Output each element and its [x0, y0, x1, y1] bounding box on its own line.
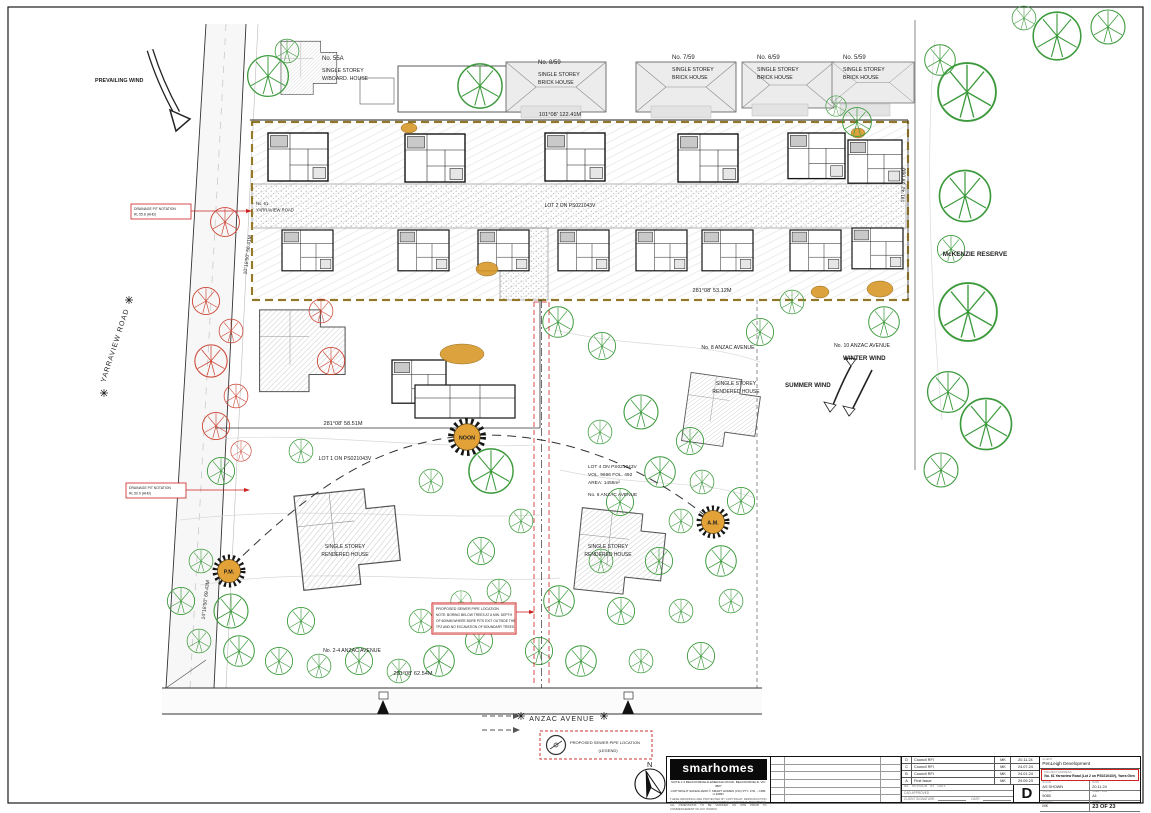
neighbor-roof — [506, 62, 606, 112]
prevailing-wind-arrow — [150, 50, 190, 131]
anzac-avenue-label: ANZAC AVENUE — [529, 716, 595, 723]
tree-icon — [289, 439, 313, 463]
sun-am-label: A.M. — [707, 521, 719, 527]
tree-icon — [669, 599, 693, 623]
reserve-label: McKENZIE RESERVE — [943, 251, 1008, 258]
lot4-label: No. 6 ANZAC AVENUE — [588, 492, 637, 498]
existing-house-label: RENDERED HOUSE — [584, 552, 632, 558]
star-decoration-icon — [517, 712, 525, 720]
neighbor-label: BRICK HOUSE — [843, 75, 879, 81]
revision-table-footer: No. REVISION BY DATE CAD APPROVED CLIENT… — [902, 785, 1013, 802]
project-address-field: PROJECT ADDRESS No. 61 Yarraview Road (L… — [1041, 769, 1139, 781]
star-decoration-icon — [600, 712, 608, 720]
sun-pm-label: P.M. — [224, 570, 235, 576]
tree-icon — [938, 63, 996, 121]
north-arrow: N — [635, 760, 665, 799]
sewer-note-text: OF 600MM WHERE BORE PITS EXIT OUTSIDE TH… — [436, 619, 516, 623]
tree-icon — [746, 318, 773, 345]
winter-wind-label: WINTER WIND — [843, 355, 886, 362]
cad-approved-label: CAD APPROVED — [904, 792, 929, 796]
revision-row: C Council RFI MK 24.07.24 — [902, 764, 1039, 771]
tree-icon — [287, 607, 314, 634]
tree-icon — [690, 470, 714, 494]
drainage-note-text: DRAINAGE PIT NOTATION — [134, 207, 176, 211]
neighbor-label: No. 8/59 — [538, 60, 561, 66]
tree-icon — [687, 642, 714, 669]
tree-icon — [939, 283, 997, 341]
neighbor-label: SINGLE STOREY — [538, 72, 580, 78]
existing-house-outline — [260, 310, 346, 392]
tree-icon — [588, 332, 615, 359]
tree-icon — [224, 636, 255, 667]
tree-icon — [469, 449, 513, 493]
proposed-house-unit — [545, 133, 605, 181]
tree-icon — [307, 654, 331, 678]
proposed-house-unit — [790, 230, 841, 271]
tree-icon — [924, 453, 958, 487]
proposed-house-unit — [788, 133, 845, 179]
existing-house-label: SINGLE STOREY — [588, 544, 629, 550]
sheet-number-field: SHEET 23 OF 23 — [1090, 801, 1140, 812]
prevailing-wind-label: PREVAILING WIND — [95, 78, 144, 84]
tree-icon — [928, 372, 969, 413]
tree-icon — [487, 579, 511, 603]
proposed-house-unit — [636, 230, 687, 271]
neighbor-label: SINGLE STOREY — [843, 67, 885, 73]
neighbor-label: SINGLE STOREY — [672, 67, 714, 73]
tree-icon — [265, 647, 292, 674]
drainage-note-text: RL 55.8 (AHD) — [134, 213, 156, 217]
current-revision-badge: D — [1013, 785, 1039, 802]
existing-house-label: RENDERED HOUSE — [712, 389, 760, 395]
address-label: No. 8 ANZAC AVENUE — [701, 345, 755, 351]
north-label: N — [647, 760, 652, 769]
address-label: No. 10 ANZAC AVENUE — [834, 343, 891, 349]
tree-icon — [419, 469, 443, 493]
tree-icon — [706, 546, 737, 577]
yarraview-road-label: YARRAVIEW ROAD — [100, 308, 130, 384]
tree-icon — [543, 307, 574, 338]
site-plan-drawing: NOON A.M. P.M. DRAINAGE PIT NOTATION RL … — [0, 0, 1151, 813]
tree-icon — [607, 597, 634, 624]
neighbor-label: No. 6/59 — [757, 55, 780, 61]
tree-icon — [509, 509, 533, 533]
sewer-note-text: TPZ AND NO EXCAVATION OF BOUNDARY TREES — [436, 625, 515, 629]
tree-icon — [624, 395, 658, 429]
proposed-house-unit — [398, 230, 449, 271]
tree-icon — [409, 609, 433, 633]
drawn-by-field: DRAWN MK — [1040, 801, 1090, 812]
proposed-house-unit — [405, 134, 465, 182]
tree-icon — [940, 171, 991, 222]
tree-icon — [937, 235, 964, 262]
drainage-note-text: DRAINAGE PIT NOTATION — [129, 486, 171, 490]
title-block-logo-cell: smarhomes SUITE 1-3 BEACONSFIELD-EMERALD… — [667, 757, 771, 802]
existing-house-label: RENDERED HOUSE — [321, 552, 369, 558]
anzac-avenue-road — [162, 660, 762, 714]
tree-icon — [1033, 12, 1081, 60]
legend-box: PROPOSED SEWER PIPE LOCATION (LEGEND) — [540, 731, 652, 759]
revision-row: D Council RFI MK 20.11.24 — [902, 757, 1039, 764]
sun-noon-label: NOON — [459, 436, 475, 442]
sewer-note-text: PROPOSED SEWER PIPE LOCATION — [436, 607, 499, 611]
title-block-empty-table — [771, 757, 902, 802]
neighbor-label: W/BOARD. HOUSE — [322, 76, 369, 82]
no61-label: YARRAVIEW ROAD — [256, 208, 294, 213]
tree-icon — [629, 649, 653, 673]
tree-icon — [231, 441, 251, 461]
proposed-house-unit — [282, 230, 333, 271]
legend-text: (LEGEND) — [598, 748, 618, 753]
legend-text: PROPOSED SEWER PIPE LOCATION — [570, 740, 640, 745]
no61-label: No. 61 — [256, 201, 269, 206]
neighbor-label: No. 55A — [322, 56, 344, 62]
tree-icon — [566, 646, 597, 677]
neighbor-label: No. 7/59 — [672, 55, 695, 61]
proposed-house-unit — [852, 228, 903, 269]
tree-icon — [727, 487, 754, 514]
existing-house-label: SINGLE STOREY — [325, 544, 366, 550]
sun-am: A.M. — [700, 509, 726, 535]
boundary-dimension: 281°08' 53.12M — [692, 288, 731, 294]
tree-icon — [1091, 10, 1125, 44]
tree-icon — [544, 586, 575, 617]
sun-pm: P.M. — [216, 558, 242, 584]
client-signature-label: CLIENT SIGNATURE — [904, 798, 935, 802]
company-logo: smarhomes — [670, 759, 767, 780]
company-copyright: COPYRIGHT SAFEGUARD © SMART HOMES (VIC) … — [670, 790, 767, 797]
neighbor-label: BRICK HOUSE — [672, 75, 708, 81]
proposed-house-unit — [558, 230, 609, 271]
tree-icon — [719, 589, 743, 613]
neighbor-label: BRICK HOUSE — [757, 75, 793, 81]
sewer-note-text: NOTE: BORING BELOW TREES AT A MIN. DEPTH — [436, 613, 513, 617]
sewer-note-box: PROPOSED SEWER PIPE LOCATION NOTE: BORIN… — [432, 603, 535, 634]
existing-house-outline — [294, 486, 402, 590]
boundary-dimension: 281°08' 62.54M — [393, 671, 432, 677]
title-block: smarhomes SUITE 1-3 BEACONSFIELD-EMERALD… — [666, 756, 1141, 803]
neighbor-label: SINGLE STOREY — [757, 67, 799, 73]
star-decoration-icon — [100, 389, 108, 397]
neighbor-label: BRICK HOUSE — [538, 80, 574, 86]
existing-house-label: SINGLE STOREY — [716, 381, 757, 387]
summer-wind-label: SUMMER WIND — [785, 382, 831, 389]
revision-table: D Council RFI MK 20.11.24 C Council RFI … — [902, 757, 1040, 802]
neighbor-houses — [281, 41, 914, 118]
lot4-label: AREA: 1456m² — [588, 480, 620, 486]
client-field: CLIENT PenLeigh Development — [1040, 757, 1140, 769]
tree-icon — [669, 509, 693, 533]
drainage-note-text: RL 50.9 (AHD) — [129, 492, 151, 496]
project-info-cell: CLIENT PenLeigh Development PROJECT ADDR… — [1040, 757, 1140, 802]
lot2-label: LOT 2 ON PS021043V — [545, 203, 596, 209]
proposed-house-unit — [268, 133, 328, 181]
tree-icon — [780, 290, 804, 314]
tree-icon — [525, 637, 552, 664]
star-decoration-icon — [125, 296, 133, 304]
sun-noon: NOON — [452, 422, 482, 452]
proposed-house-unit — [702, 230, 753, 271]
proposed-house-unit — [678, 134, 738, 182]
proposed-house-unit — [848, 140, 902, 183]
fine-print: THESE DRAWINGS ARE PROTECTED BY COPYRIGH… — [670, 798, 767, 811]
boundary-dimension: 281°08' 58.51M — [323, 421, 362, 427]
neighbor-label: SINGLE STOREY — [322, 68, 364, 74]
tree-icon — [588, 420, 612, 444]
tree-icon — [467, 537, 494, 564]
date-line — [983, 798, 1012, 801]
lot1-label: LOT 1 ON PS021043V — [319, 456, 372, 462]
tree-icon — [214, 594, 248, 628]
revision-row: B Council RFI MK 24.01.24 — [902, 771, 1039, 778]
address-label: No. 2-4 ANZAC AVENUE — [323, 648, 381, 654]
sewer-corridor — [534, 300, 549, 688]
boundary-dimension: 101°08' 122.41M — [539, 112, 582, 118]
lot4-label: LOT 4 ON PS021043V — [588, 464, 638, 470]
seasonal-wind-arrows — [824, 358, 872, 416]
tree-icon — [961, 399, 1012, 450]
tree-icon — [869, 307, 900, 338]
lot4-label: VOL. 9666 FOL. 492 — [588, 472, 633, 478]
signature-line — [938, 798, 967, 801]
company-address: SUITE 1-3 BEACONSFIELD-EMERALD ROAD, BEA… — [670, 781, 767, 788]
tree-icon — [925, 45, 956, 76]
neighbor-label: No. 5/59 — [843, 55, 866, 61]
tree-icon — [1012, 6, 1036, 30]
drawing-sheet: NOON A.M. P.M. DRAINAGE PIT NOTATION RL … — [0, 0, 1151, 813]
